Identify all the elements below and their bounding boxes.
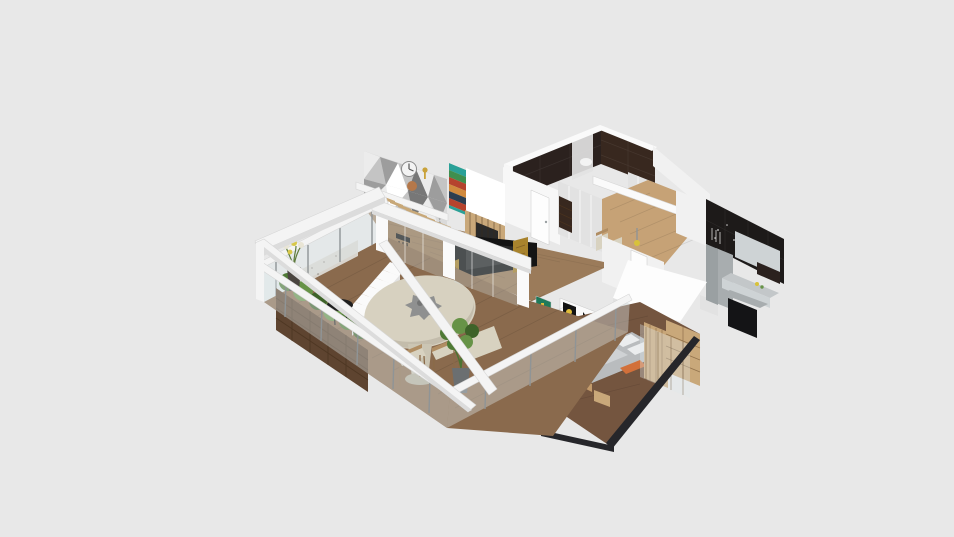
toilet — [580, 158, 592, 166]
wardrobe-open-shelves — [559, 196, 572, 233]
design-app-canvas — [0, 0, 954, 537]
door-knob — [545, 221, 547, 223]
pergola-corner-post — [256, 243, 264, 302]
brass-key-decor — [422, 167, 427, 172]
kitchen-side-gray — [706, 244, 718, 305]
counter-item — [755, 282, 759, 286]
copper-disc — [407, 181, 417, 191]
bathroom-door — [531, 190, 549, 245]
counter-item — [760, 285, 763, 288]
brass-key-stem — [424, 172, 426, 179]
floorplan-3d-viewport[interactable] — [0, 0, 954, 537]
pendant-light — [634, 240, 640, 246]
